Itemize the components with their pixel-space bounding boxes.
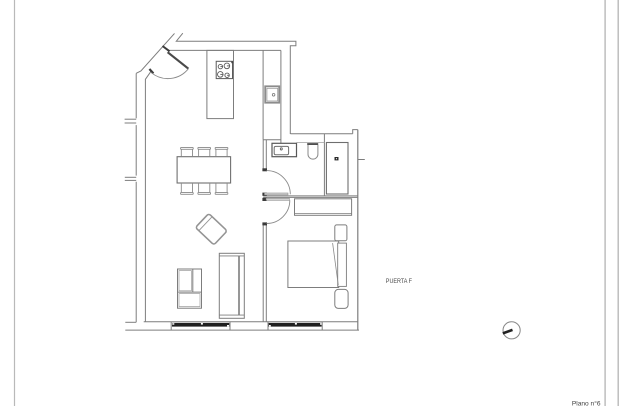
svg-text:Plano n°6: Plano n°6 bbox=[572, 399, 601, 406]
svg-text:PUERTA F: PUERTA F bbox=[386, 278, 412, 285]
